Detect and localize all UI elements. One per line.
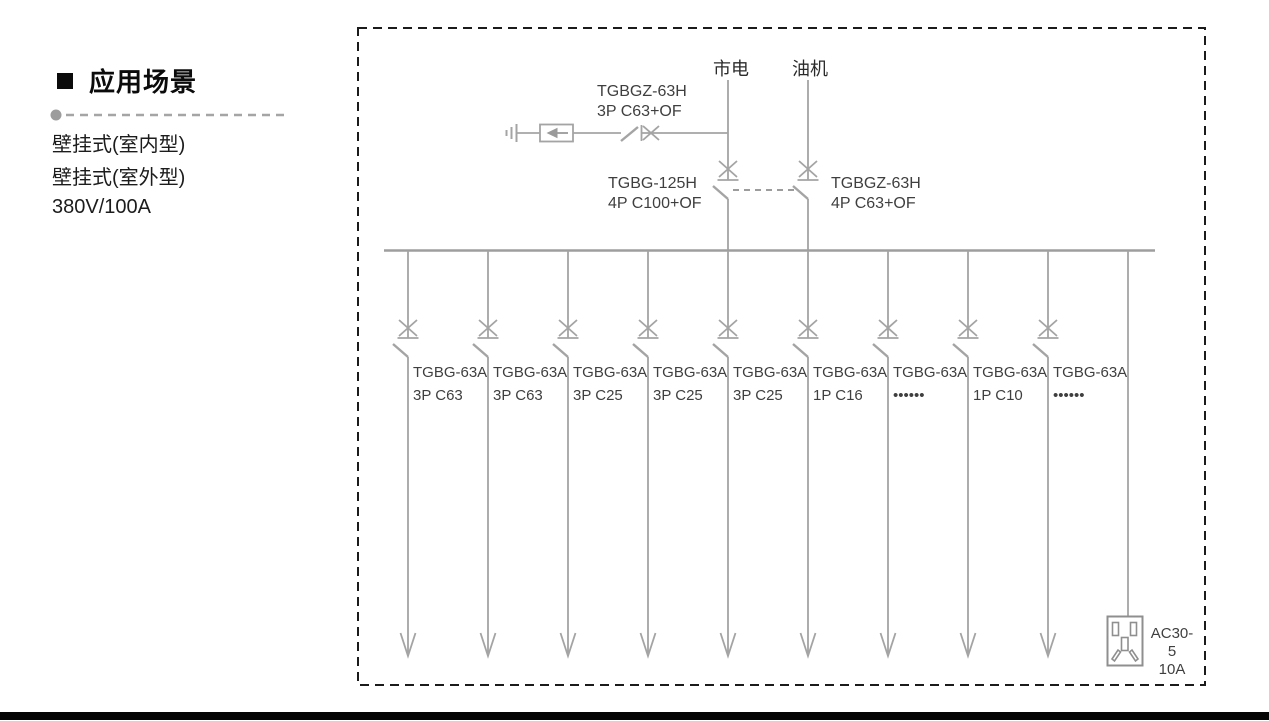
- feeder-spec: 3P C63: [413, 384, 487, 407]
- mains-source-label: 市电: [713, 55, 749, 81]
- breaker-blade: [633, 344, 648, 357]
- feeder-label-9: TGBG-63A••••••: [1053, 361, 1127, 407]
- generator-source-label: 油机: [792, 55, 828, 81]
- feeder-branch-4: [633, 251, 659, 656]
- breaker-blade: [553, 344, 568, 357]
- socket-icon: [1108, 617, 1143, 666]
- breaker-blade: [393, 344, 408, 357]
- spec-item-rating: 380V/100A: [52, 196, 151, 219]
- socket-rating: 10A: [1147, 661, 1197, 679]
- feeder-spec: 3P C25: [733, 384, 807, 407]
- feeder-label-3: TGBG-63A3P C25: [573, 361, 647, 407]
- breaker-blade: [1033, 344, 1048, 357]
- breaker-blade: [621, 127, 638, 141]
- earth-ground-icon: [507, 124, 517, 142]
- feeder-branch-9: [1033, 251, 1059, 656]
- breaker-blade: [793, 186, 808, 199]
- feeder-label-4: TGBG-63A3P C25: [653, 361, 727, 407]
- generator-breaker-spec: 4P C63+OF: [831, 194, 921, 214]
- feeder-label-1: TGBG-63A3P C63: [413, 361, 487, 407]
- feeder-model: TGBG-63A: [813, 361, 887, 384]
- breaker-blade: [713, 186, 728, 199]
- generator-breaker-model: TGBGZ-63H: [831, 174, 921, 194]
- feeder-label-5: TGBG-63A3P C25: [733, 361, 807, 407]
- feeder-spec: ••••••: [1053, 384, 1127, 407]
- feeder-branch-8: [953, 251, 979, 656]
- feeder-model: TGBG-63A: [653, 361, 727, 384]
- mains-breaker-spec: 4P C100+OF: [608, 194, 702, 214]
- mains-breaker-model: TGBG-125H: [608, 174, 702, 194]
- spd-branch: [507, 124, 729, 142]
- separator-dot-icon: [51, 110, 62, 121]
- spd-breaker-label: TGBGZ-63H3P C63+OF: [597, 82, 687, 122]
- socket-label: AC30-510A: [1147, 625, 1197, 679]
- feeder-model: TGBG-63A: [493, 361, 567, 384]
- feeder-spec: 3P C25: [653, 384, 727, 407]
- feeder-label-2: TGBG-63A3P C63: [493, 361, 567, 407]
- page: 应用场景 壁挂式(室内型) 壁挂式(室外型) 380V/100A 市电 油机 T…: [0, 0, 1269, 721]
- mains-incoming-line: [713, 80, 739, 251]
- feeder-spec: 1P C10: [973, 384, 1047, 407]
- feeder-model: TGBG-63A: [1053, 361, 1127, 384]
- feeder-spec: 3P C25: [573, 384, 647, 407]
- breaker-blade: [953, 344, 968, 357]
- spd-breaker-spec: 3P C63+OF: [597, 102, 687, 122]
- feeder-branch-6: [793, 251, 819, 656]
- feeder-branch-7: [873, 251, 899, 656]
- breaker-blade: [713, 344, 728, 357]
- spec-item-indoor: 壁挂式(室内型): [52, 128, 185, 157]
- breaker-blade: [473, 344, 488, 357]
- socket-model: AC30-5: [1147, 625, 1197, 661]
- feeder-model: TGBG-63A: [733, 361, 807, 384]
- feeder-model: TGBG-63A: [893, 361, 967, 384]
- generator-breaker-label: TGBGZ-63H4P C63+OF: [831, 174, 921, 214]
- feeder-label-6: TGBG-63A1P C16: [813, 361, 887, 407]
- feeder-model: TGBG-63A: [973, 361, 1047, 384]
- feeder-spec: 3P C63: [493, 384, 567, 407]
- feeder-branch-2: [473, 251, 499, 656]
- feeder-branch-5: [713, 251, 739, 656]
- breaker-blade: [793, 344, 808, 357]
- spd-breaker-model: TGBGZ-63H: [597, 82, 687, 102]
- feeder-branch-1: [393, 251, 419, 656]
- feeder-branch-3: [553, 251, 579, 656]
- square-bullet-icon: [57, 73, 73, 89]
- footer-bar: [0, 712, 1269, 720]
- section-title-row: 应用场景: [57, 62, 197, 99]
- feeder-model: TGBG-63A: [573, 361, 647, 384]
- feeder-spec: 1P C16: [813, 384, 887, 407]
- feeder-label-8: TGBG-63A1P C10: [973, 361, 1047, 407]
- feeder-label-7: TGBG-63A••••••: [893, 361, 967, 407]
- feeder-spec: ••••••: [893, 384, 967, 407]
- cabinet-dashed-border: [358, 28, 1205, 685]
- feeder-model: TGBG-63A: [413, 361, 487, 384]
- section-title: 应用场景: [89, 62, 197, 99]
- generator-incoming-line: [793, 80, 819, 251]
- breaker-blade: [873, 344, 888, 357]
- sidebar-separator: [51, 110, 290, 121]
- spec-item-outdoor: 壁挂式(室外型): [52, 161, 185, 190]
- mains-breaker-label: TGBG-125H4P C100+OF: [608, 174, 702, 214]
